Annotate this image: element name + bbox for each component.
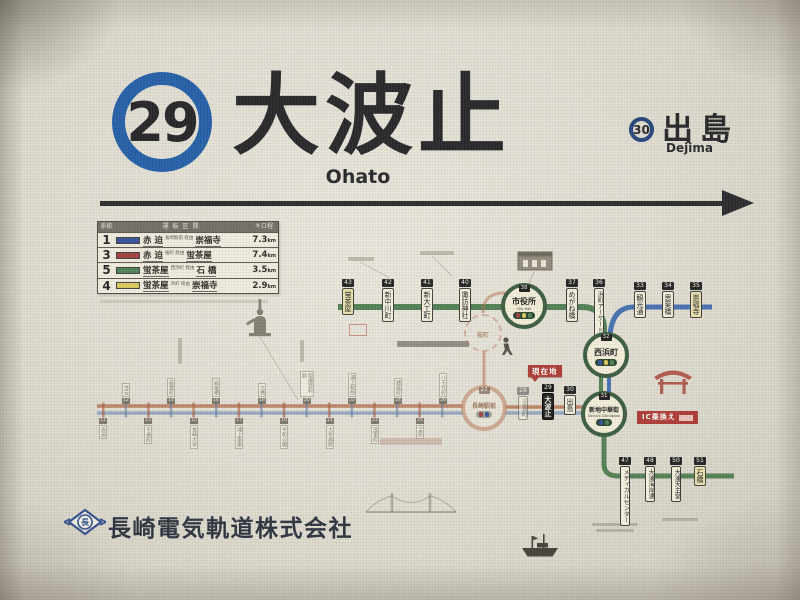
station-romaji: Ohato: [298, 166, 418, 188]
station-sofukuji: 35 崇福寺: [687, 282, 705, 318]
stop-yachiyomachi: 八千代町26: [437, 371, 450, 405]
station-number: 48: [644, 457, 656, 465]
station-number: 32: [601, 334, 612, 341]
station-shin-daikumachi: 41 新大工町: [418, 279, 436, 322]
station-name: 長崎駅前: [472, 401, 496, 410]
station-number: 35: [690, 282, 702, 290]
station-name: 大浦海岸通: [645, 466, 656, 502]
current-location-marker: 現在地: [528, 365, 562, 377]
company-logo: 長: [64, 508, 106, 538]
station-number: 42: [382, 279, 394, 287]
stop-akasako: 11赤迫: [97, 417, 110, 439]
route-color-bar: [116, 282, 140, 289]
station-name: 市役所: [512, 296, 536, 307]
route-to: 崇福寺: [192, 279, 218, 292]
annotation-smudge: [300, 340, 304, 362]
stop-peace-park: 19平和公園: [278, 417, 291, 449]
next-station-badge: 30: [629, 117, 654, 142]
station-hotarujaya: 43 蛍茶屋: [339, 279, 357, 315]
legend-col-distance: キロ程: [250, 222, 278, 232]
annotation-smudge: [100, 300, 268, 303]
annotation-smudge: [178, 338, 182, 364]
station-name-en: City Hall: [517, 307, 532, 311]
route-via: 浜町 経由: [171, 281, 190, 287]
stop-ohashi: 大橋18: [256, 371, 269, 405]
route-to: 蛍茶屋: [186, 249, 212, 262]
station-ishibashi: 51 石橋: [691, 457, 709, 486]
stop-sakuramachi-faint: 桜町: [464, 314, 502, 352]
station-shianbashi: 34 思案橋: [659, 282, 677, 318]
stop-atomic-bomb-museum: 原爆資料館20: [301, 371, 314, 405]
station-number: 37: [566, 279, 578, 287]
fabric-print-route-sign: 29 大波止 Ohato 30 出島 Dejima 系統 運転区間 キロ程 1 …: [0, 0, 800, 600]
station-shin-nakagawamachi: 42 新中川町: [379, 279, 397, 322]
station-name: めがね橋: [566, 288, 578, 322]
station-meganebashi: 37 めがね橋: [563, 279, 581, 322]
station-name: 思案橋: [662, 291, 674, 318]
stop-morimachi: 23茂里町: [369, 417, 382, 444]
route-via: 桜町 経由: [165, 250, 184, 256]
note-band: [380, 438, 442, 445]
station-hamanomachi-arcade: 36 浜町アーケード: [590, 279, 608, 336]
route-color-bar: [116, 252, 140, 259]
station-name: 崇福寺: [690, 291, 702, 318]
route-via: 西浜町 経由: [171, 265, 195, 271]
route-number: 5: [98, 263, 115, 277]
notice-stamp: [349, 324, 367, 336]
station-name: 出島: [564, 395, 576, 415]
station-name: 西浜町: [594, 347, 618, 358]
walking-person-icon: [502, 337, 513, 355]
route-distance: 2.9: [252, 281, 267, 291]
station-number: 38: [519, 285, 530, 292]
station-ohato-current: 29 大波止: [539, 384, 557, 420]
route-number: 1: [98, 233, 115, 247]
next-station-number: 30: [633, 123, 650, 137]
next-station-romaji: Dejima: [666, 141, 713, 155]
station-number-badge: 29: [112, 72, 212, 172]
route-legend-table: 系統 運転区間 キロ程 1 赤 迫長崎駅前 経由崇福寺 7.3km 3 赤 迫桜…: [97, 221, 279, 294]
station-gotomachi: 28 五島町: [514, 387, 532, 420]
legend-row-5: 5 蛍茶屋西浜町 経由石 橋 3.5km: [98, 262, 278, 277]
station-number: 27: [479, 387, 490, 394]
interchange-shinchi-chinatown: 31 新地中華街 Shinchi Chinatown: [581, 391, 627, 437]
route-from: 蛍茶屋: [143, 264, 169, 277]
station-dejima: 30 出島: [561, 386, 579, 415]
station-number: 36: [593, 279, 605, 287]
ship-icon: [522, 534, 558, 557]
station-number: 47: [619, 457, 631, 465]
station-name: 大波止: [542, 393, 554, 420]
stop-urakami-ekimae: 浦上駅前22: [346, 371, 359, 405]
legend-header-row: 系統 運転区間 キロ程: [98, 222, 278, 232]
station-number: 50: [670, 457, 682, 465]
logo-character: 長: [81, 518, 90, 527]
transfer-icon: [476, 411, 493, 419]
station-number: 41: [421, 279, 433, 287]
station-number: 30: [564, 386, 576, 394]
ic-transfer-label: IC乗換え: [642, 413, 676, 422]
route-distance: 7.4: [252, 250, 267, 260]
station-name: メディカルセンター: [620, 466, 631, 526]
route-from: 赤 迫: [143, 234, 163, 247]
route-color-bar: [116, 267, 140, 274]
transfer-icon: [513, 312, 536, 320]
route-color-bar: [116, 237, 140, 244]
route-number: 4: [98, 279, 115, 293]
station-name: 観光通: [634, 291, 646, 318]
station-number: 51: [694, 457, 706, 465]
station-number: 34: [662, 282, 674, 290]
interchange-shiyakusho: 38 市役所 City Hall: [501, 283, 547, 329]
company-name: 長崎電気軌道株式会社: [108, 509, 353, 543]
annotation-smudge: [420, 251, 454, 255]
chinatown-gate-icon: [654, 371, 692, 395]
station-name: 新大工町: [421, 288, 433, 322]
station-number: 29: [126, 91, 197, 154]
legend-col-route: 系統: [98, 222, 115, 232]
ic-transfer-banner: IC乗換え: [637, 411, 698, 424]
station-number: 40: [459, 279, 471, 287]
legend-row-1: 1 赤 迫長崎駅前 経由崇福寺 7.3km: [98, 232, 278, 247]
station-name: 新地中華街: [589, 405, 619, 414]
station-number: 28: [517, 387, 529, 395]
megami-bridge-icon: [366, 493, 456, 512]
station-number: 29: [542, 384, 554, 392]
route-from: 赤 迫: [143, 249, 163, 262]
route-distance: 3.5: [252, 265, 267, 275]
transfer-icon: [595, 359, 618, 367]
route-to: 石 橋: [196, 264, 216, 277]
station-medical-center: 47 メディカルセンター: [616, 457, 634, 526]
route-via: 長崎駅前 経由: [165, 235, 193, 241]
legend-row-3: 3 赤 迫桜町 経由蛍茶屋 7.4km: [98, 247, 278, 262]
station-name-en: Shinchi Chinatown: [588, 414, 620, 418]
station-title: 大波止: [232, 66, 492, 166]
station-number: 33: [634, 282, 646, 290]
peace-statue-icon: [246, 299, 271, 336]
annotation-smudge: [348, 257, 374, 261]
stop-chitosemachi: 13千歳町: [142, 417, 155, 444]
station-name: 五島町: [518, 396, 529, 420]
station-kanko-dori: 33 観光通: [631, 282, 649, 318]
jr-station-building-icon: [518, 252, 552, 270]
interchange-nishihamanomachi: 32 西浜町: [583, 332, 629, 378]
route-number: 3: [98, 248, 115, 262]
stop-sumiyoshi: 住吉12: [120, 371, 133, 405]
ic-card-icon: [679, 415, 693, 421]
station-oura-cathedral: 50 大浦天主堂: [667, 457, 685, 502]
route-to: 崇福寺: [195, 234, 221, 247]
stop-takaramachi: 25宝町: [414, 417, 427, 439]
station-oura-kaigan-dori: 48 大浦海岸通: [641, 457, 659, 502]
direction-arrow-line: [100, 201, 728, 206]
station-name: 諏訪神社: [459, 288, 471, 322]
station-name: 石橋: [694, 466, 706, 486]
stop-daigaku-byoin: 21大学病院: [324, 417, 337, 449]
station-name: 浜町アーケード: [594, 288, 605, 336]
station-suwa-jinja: 40 諏訪神社: [456, 279, 474, 322]
annotation-smudge: [662, 518, 698, 521]
stop-urakami-shako: 17浦上車庫: [233, 417, 246, 449]
legend-row-4: 4 蛍茶屋浜町 経由崇福寺 2.9km: [98, 278, 278, 293]
stop-iwayabashi: 岩屋橋16: [210, 371, 223, 405]
note-band: [397, 341, 469, 347]
station-name: 新中川町: [382, 288, 394, 322]
station-number: 43: [342, 279, 354, 287]
stop-nagasaki-university: 15長崎大学: [188, 417, 201, 449]
interchange-nagasaki-station: 27 長崎駅前: [461, 385, 507, 431]
stop-wakabamachi: 若葉町14: [165, 371, 178, 405]
station-number: 31: [599, 393, 610, 400]
direction-arrow-head: [722, 190, 754, 216]
station-name: 大浦天主堂: [671, 466, 682, 502]
route-from: 蛍茶屋: [143, 279, 169, 292]
station-name: 桜町: [477, 330, 489, 339]
transfer-icon: [596, 419, 613, 427]
stop-zenzamachi: 銭座町24: [392, 371, 405, 405]
route-distance: 7.3: [252, 235, 267, 245]
annotation-smudge: [596, 529, 634, 532]
legend-col-section: 運転区間: [115, 222, 250, 232]
station-name: 蛍茶屋: [342, 288, 354, 315]
